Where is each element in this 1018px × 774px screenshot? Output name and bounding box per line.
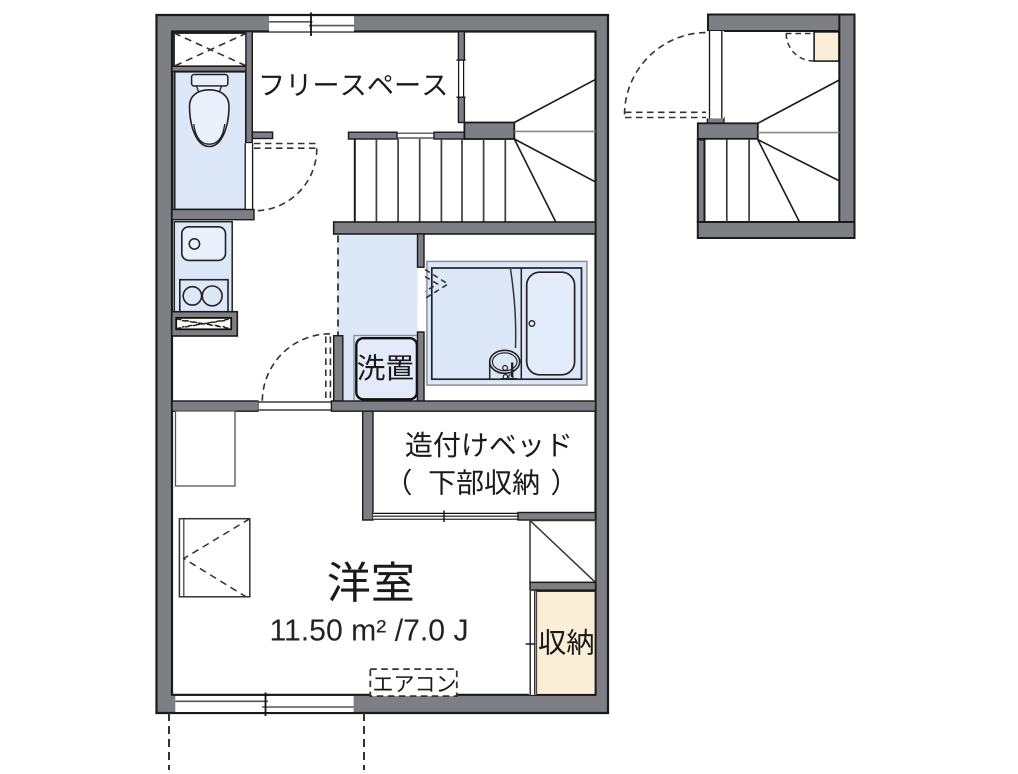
svg-text:11.50 m² /7.0 J: 11.50 m² /7.0 J bbox=[269, 615, 468, 648]
